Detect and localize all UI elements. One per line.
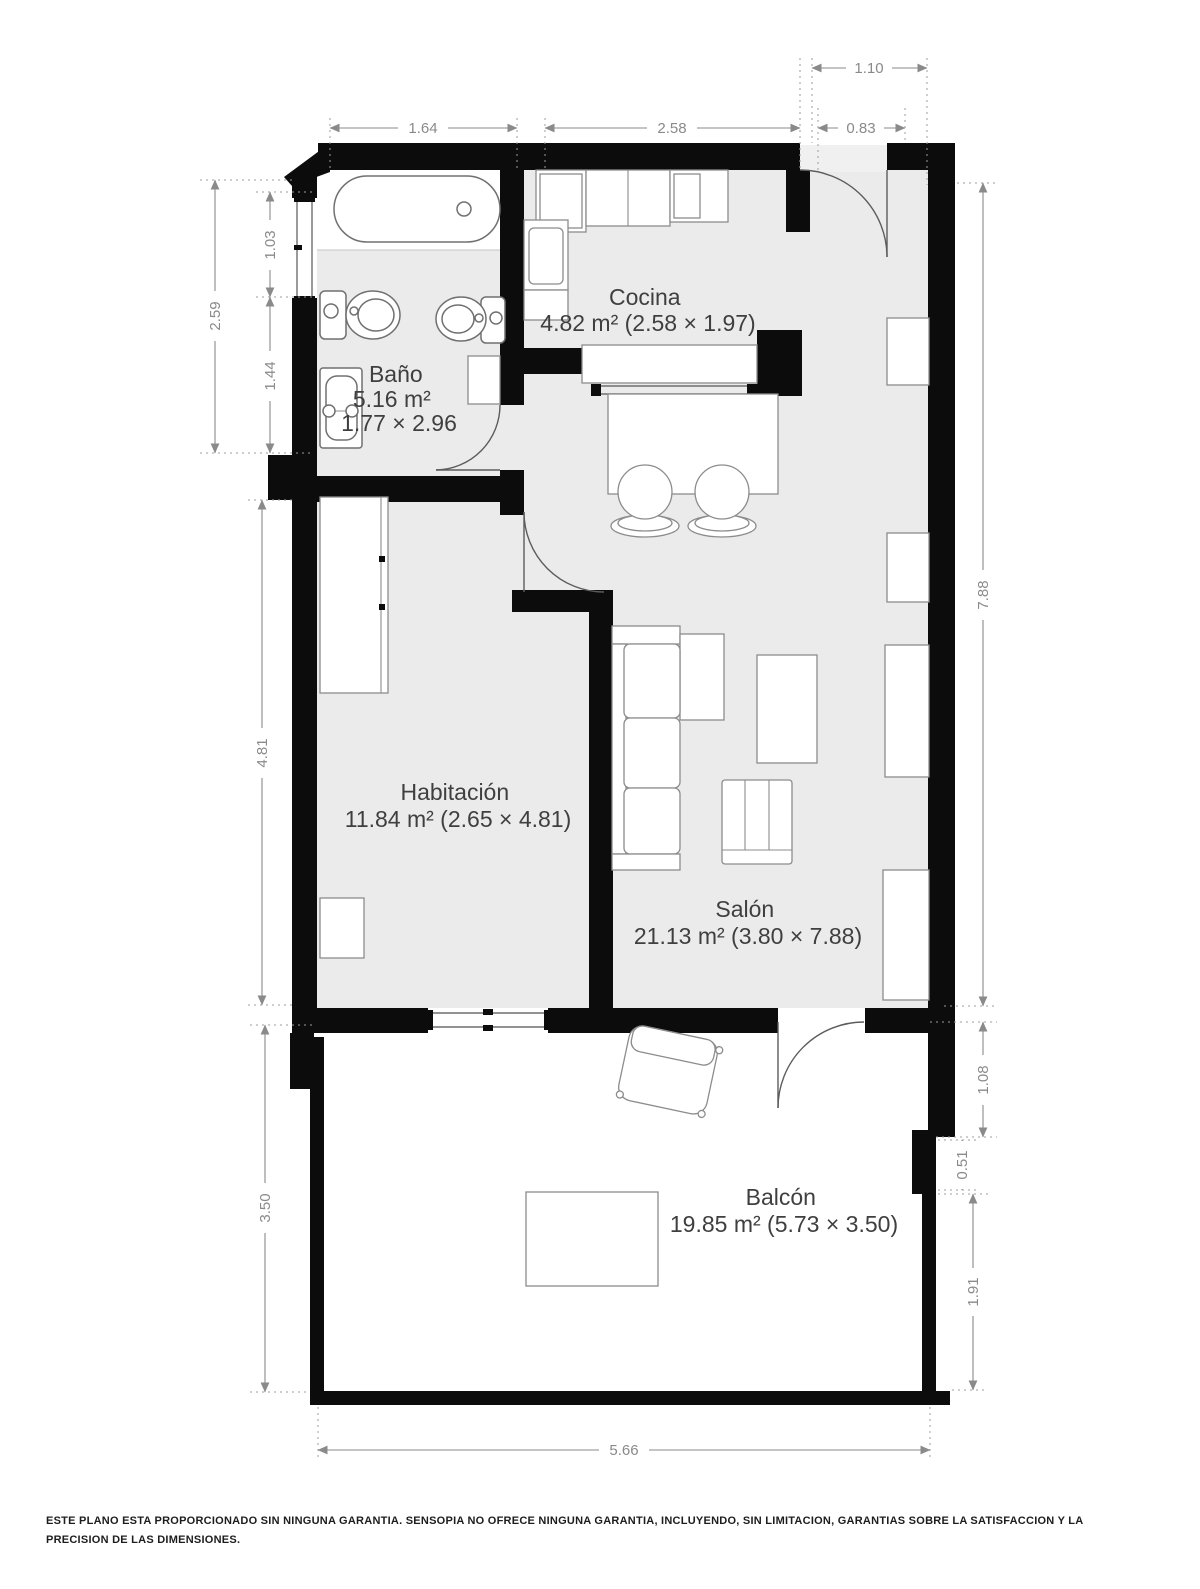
wardrobe <box>320 497 388 693</box>
dim-left-balcony: 3.50 <box>255 1025 275 1392</box>
dim-right-upper: 1.08 <box>973 1022 993 1137</box>
disclaimer-text: ESTE PLANO ESTA PROPORCIONADO SIN NINGUN… <box>46 1512 1142 1551</box>
dim-top-entry-outer: 1.10 <box>812 58 927 78</box>
svg-text:5.66: 5.66 <box>609 1442 638 1459</box>
balcony-table <box>526 1192 658 1286</box>
svg-text:1.10: 1.10 <box>854 60 883 77</box>
entrance-recess <box>800 145 887 172</box>
bedroom-cabinet <box>320 898 364 958</box>
floor-areas <box>317 145 928 1008</box>
balcony-railing-bottom <box>310 1391 950 1405</box>
bathroom-cabinet <box>468 356 500 404</box>
svg-text:0.51: 0.51 <box>954 1150 971 1179</box>
room-label-balcon: Balcón 19.85 m² (5.73 × 3.50) <box>670 1184 898 1237</box>
dim-right-lower: 1.91 <box>963 1194 983 1390</box>
svg-text:7.88: 7.88 <box>975 580 992 609</box>
oven <box>524 220 568 320</box>
bidet <box>436 297 505 343</box>
toilet <box>320 291 400 339</box>
floor-plan-page: 1.64 2.58 0.83 1.10 2.59 1.03 1.44 <box>0 0 1200 1589</box>
svg-text:2.58: 2.58 <box>657 120 686 137</box>
balcony-door <box>778 1022 864 1108</box>
balcony-railing-right <box>922 1192 936 1405</box>
floor-plan-svg: 1.64 2.58 0.83 1.10 2.59 1.03 1.44 <box>0 0 1200 1589</box>
dim-left-lower: 1.44 <box>260 297 280 453</box>
dim-right-total: 7.88 <box>973 183 993 1006</box>
dim-top-bathroom: 1.64 <box>330 118 517 138</box>
armchair <box>722 780 792 864</box>
dim-left-window: 1.03 <box>260 192 280 297</box>
coffee-table <box>757 655 817 763</box>
dim-bottom-balcony: 5.66 <box>318 1440 930 1460</box>
svg-text:1.64: 1.64 <box>408 120 437 137</box>
balcony-railing-left <box>310 1037 324 1405</box>
dim-left-bedroom: 4.81 <box>252 500 272 1005</box>
bathroom-window <box>292 196 317 302</box>
svg-text:0.83: 0.83 <box>846 120 875 137</box>
dim-top-kitchen: 2.58 <box>545 118 800 138</box>
svg-text:1.08: 1.08 <box>975 1065 992 1094</box>
dim-left-bathroom-total: 2.59 <box>205 180 225 453</box>
svg-text:1.91: 1.91 <box>965 1277 982 1306</box>
lounge-chair <box>615 1023 724 1119</box>
svg-text:2.59: 2.59 <box>207 301 224 330</box>
svg-text:1.44: 1.44 <box>262 361 279 390</box>
bathtub <box>334 176 500 242</box>
bedroom-window <box>426 1008 551 1033</box>
dim-right-step: 0.51 <box>952 1140 972 1190</box>
svg-text:1.03: 1.03 <box>262 230 279 259</box>
dim-top-entry: 0.83 <box>818 118 905 138</box>
svg-text:3.50: 3.50 <box>257 1193 274 1222</box>
svg-text:4.81: 4.81 <box>254 738 271 767</box>
